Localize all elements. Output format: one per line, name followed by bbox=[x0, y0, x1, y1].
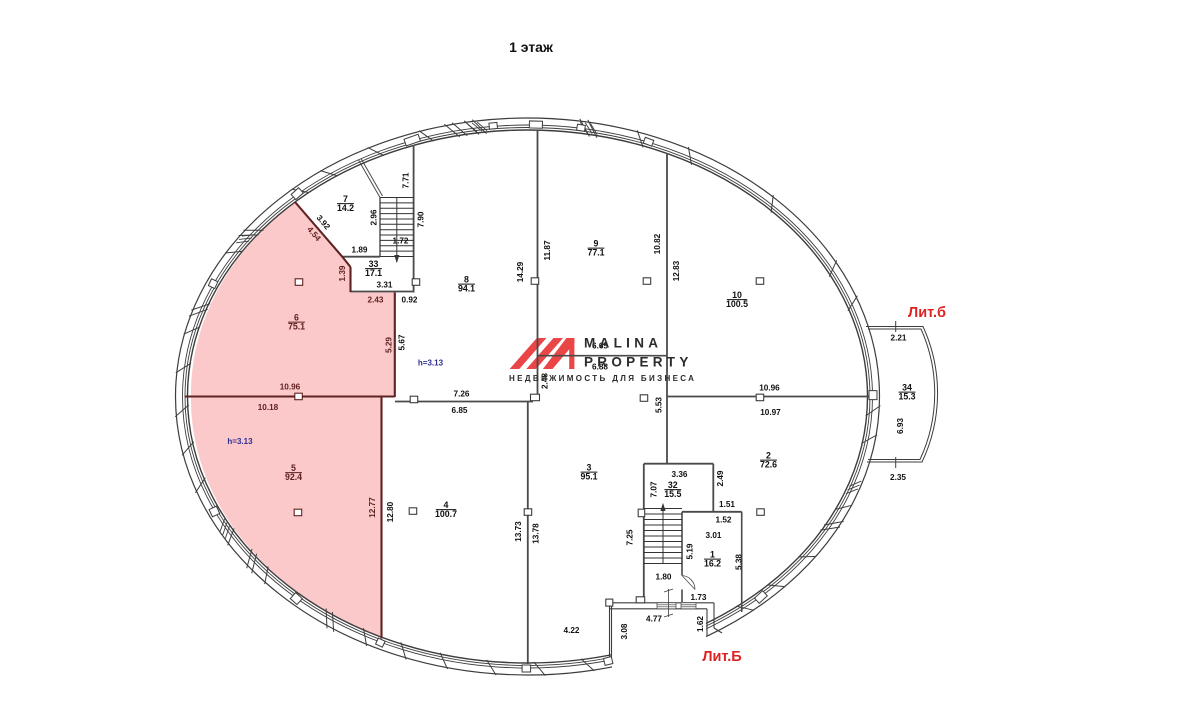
svg-text:100.7: 100.7 bbox=[435, 509, 457, 519]
svg-text:4.77: 4.77 bbox=[646, 615, 662, 624]
svg-text:1.89: 1.89 bbox=[352, 246, 368, 255]
svg-text:10.96: 10.96 bbox=[759, 384, 780, 393]
svg-text:2.96: 2.96 bbox=[370, 209, 379, 225]
svg-text:1 этаж: 1 этаж bbox=[509, 39, 554, 55]
svg-text:6.85: 6.85 bbox=[452, 406, 468, 415]
svg-text:7.71: 7.71 bbox=[402, 172, 411, 188]
svg-text:13.73: 13.73 bbox=[514, 521, 523, 542]
svg-text:14.29: 14.29 bbox=[516, 261, 525, 282]
svg-text:Лит.Б: Лит.Б bbox=[702, 649, 741, 665]
svg-text:1.51: 1.51 bbox=[719, 500, 735, 509]
svg-text:75.1: 75.1 bbox=[288, 322, 305, 332]
svg-text:НЕДВИЖИМОСТЬ ДЛЯ БИЗНЕСА: НЕДВИЖИМОСТЬ ДЛЯ БИЗНЕСА bbox=[509, 374, 696, 383]
svg-text:12.83: 12.83 bbox=[672, 260, 681, 281]
svg-text:72.6: 72.6 bbox=[760, 460, 777, 470]
svg-text:5.19: 5.19 bbox=[686, 543, 695, 559]
svg-text:2.49: 2.49 bbox=[716, 470, 725, 486]
svg-text:1.52: 1.52 bbox=[716, 516, 732, 525]
svg-text:3.36: 3.36 bbox=[672, 470, 688, 479]
svg-text:1.72: 1.72 bbox=[393, 237, 409, 246]
svg-text:PROPERTY: PROPERTY bbox=[584, 355, 693, 370]
svg-text:10.18: 10.18 bbox=[258, 403, 279, 412]
svg-text:1.73: 1.73 bbox=[691, 593, 707, 602]
svg-text:5.29: 5.29 bbox=[385, 337, 394, 353]
svg-text:4.22: 4.22 bbox=[564, 626, 580, 635]
svg-text:6.93: 6.93 bbox=[896, 418, 905, 434]
svg-text:11.87: 11.87 bbox=[543, 240, 552, 260]
svg-text:3.08: 3.08 bbox=[620, 623, 629, 639]
svg-text:16.2: 16.2 bbox=[704, 559, 721, 569]
svg-text:10.96: 10.96 bbox=[280, 383, 301, 392]
svg-text:2.21: 2.21 bbox=[891, 334, 907, 343]
svg-text:7.07: 7.07 bbox=[650, 481, 659, 497]
svg-text:95.1: 95.1 bbox=[580, 472, 597, 482]
svg-text:2.43: 2.43 bbox=[368, 296, 384, 305]
svg-text:10.97: 10.97 bbox=[760, 408, 781, 417]
svg-text:3.01: 3.01 bbox=[706, 531, 722, 540]
svg-text:100.5: 100.5 bbox=[726, 299, 748, 309]
svg-text:5.53: 5.53 bbox=[655, 397, 664, 413]
svg-text:h=3.13: h=3.13 bbox=[418, 359, 444, 368]
svg-text:1.62: 1.62 bbox=[696, 616, 705, 632]
svg-text:12.77: 12.77 bbox=[368, 497, 377, 518]
svg-text:Лит.б: Лит.б bbox=[908, 305, 946, 321]
svg-text:1.80: 1.80 bbox=[656, 573, 672, 582]
svg-text:13.78: 13.78 bbox=[532, 523, 541, 544]
svg-text:0.92: 0.92 bbox=[402, 296, 418, 305]
svg-text:5.38: 5.38 bbox=[735, 554, 744, 570]
svg-text:3.31: 3.31 bbox=[377, 281, 393, 290]
svg-text:94.1: 94.1 bbox=[458, 284, 475, 294]
svg-text:15.3: 15.3 bbox=[898, 392, 915, 402]
svg-text:2.35: 2.35 bbox=[890, 473, 906, 482]
svg-text:10.82: 10.82 bbox=[653, 233, 662, 254]
svg-text:1.39: 1.39 bbox=[338, 265, 347, 281]
svg-text:77.1: 77.1 bbox=[587, 248, 604, 258]
svg-text:5.67: 5.67 bbox=[398, 334, 407, 350]
svg-text:h=3.13: h=3.13 bbox=[227, 437, 253, 446]
svg-text:14.2: 14.2 bbox=[337, 203, 354, 213]
svg-text:7.90: 7.90 bbox=[417, 211, 426, 227]
svg-text:17.1: 17.1 bbox=[365, 268, 382, 278]
svg-text:12.80: 12.80 bbox=[386, 501, 395, 522]
svg-text:MALINA: MALINA bbox=[584, 336, 662, 351]
svg-text:15.5: 15.5 bbox=[664, 489, 681, 499]
svg-text:7.26: 7.26 bbox=[454, 390, 470, 399]
svg-text:7.25: 7.25 bbox=[626, 529, 635, 545]
svg-text:92.4: 92.4 bbox=[285, 472, 302, 482]
